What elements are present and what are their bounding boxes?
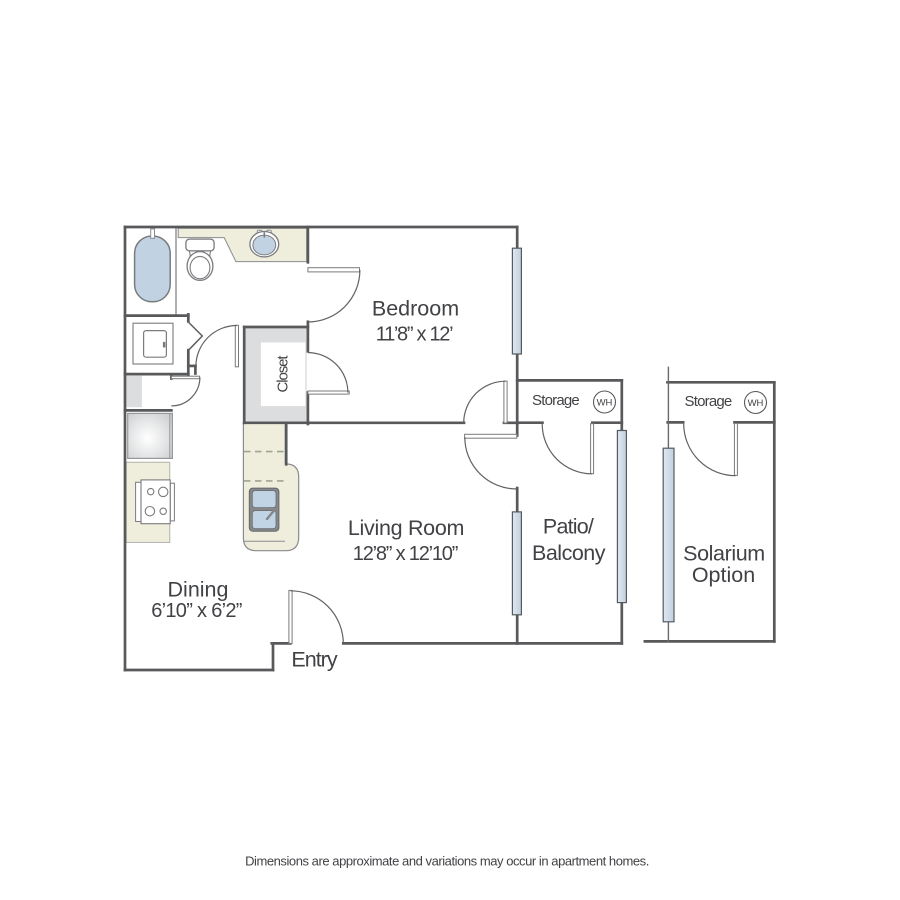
svg-text:WH: WH [597,397,613,408]
svg-text:Storage: Storage [532,392,579,409]
svg-text:Solarium: Solarium [683,542,765,566]
svg-text:Patio/: Patio/ [543,515,594,539]
svg-text:Dimensions are approximate and: Dimensions are approximate and variation… [245,854,649,869]
svg-text:12’8” x 12’10”: 12’8” x 12’10” [353,543,458,565]
svg-text:Storage: Storage [685,393,732,410]
svg-text:Bedroom: Bedroom [372,297,459,321]
svg-text:Closet: Closet [275,355,292,393]
svg-text:Entry: Entry [291,648,337,672]
svg-text:Dining: Dining [168,578,229,602]
svg-text:Living Room: Living Room [348,516,464,540]
svg-text:Balcony: Balcony [532,541,606,565]
svg-text:Option: Option [692,563,755,587]
svg-text:WH: WH [748,398,764,409]
svg-text:11’8” x 12’: 11’8” x 12’ [376,324,453,346]
svg-text:6’10” x 6’2”: 6’10” x 6’2” [151,600,242,622]
